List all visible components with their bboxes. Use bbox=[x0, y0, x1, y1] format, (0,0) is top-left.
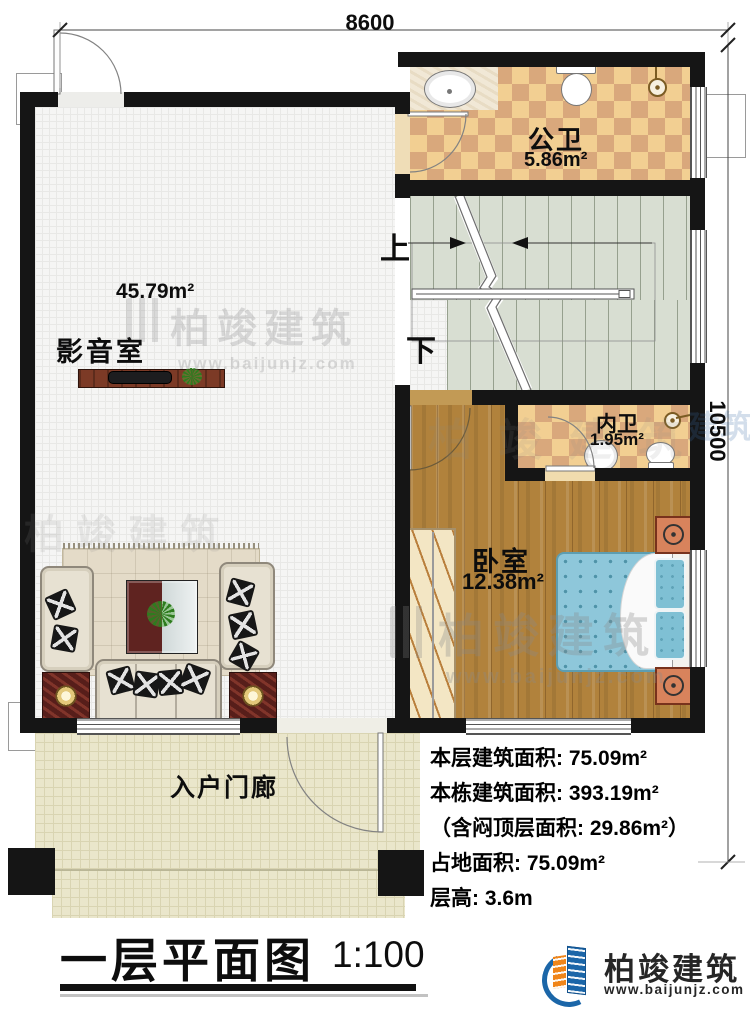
window-living-bottom bbox=[77, 718, 240, 735]
brand-website: www.baijunjz.com bbox=[604, 982, 745, 997]
entrance-door-swing-arc bbox=[287, 737, 382, 832]
plan-title: 一层平面图 bbox=[60, 922, 315, 991]
entrance-door-panel bbox=[378, 733, 383, 832]
wall-divider-b bbox=[395, 174, 410, 198]
watermark-private-bath: 柏竣建筑 bbox=[428, 404, 708, 468]
title-underline-thin bbox=[60, 994, 428, 997]
porch-name: 入户门廊 bbox=[170, 768, 278, 804]
window-bedroom-right bbox=[690, 550, 707, 667]
public-bath-door-panel bbox=[408, 112, 468, 116]
public-bath-door-swing-arc bbox=[410, 114, 466, 172]
watermark-text: 柏竣建筑 bbox=[438, 600, 667, 666]
side-door-swing-arc bbox=[60, 33, 121, 94]
stat-building-area: 本栋建筑面积: 393.19m² bbox=[430, 777, 659, 807]
porch-pillar-right bbox=[378, 850, 424, 896]
wall-divider-a bbox=[395, 92, 410, 114]
watermark-living-room: 柏竣建筑 bbox=[24, 502, 232, 560]
watermark-logo-icon bbox=[390, 606, 428, 658]
media-room-area: 45.79m² bbox=[116, 280, 194, 304]
stat-attic-area: （含闷顶层面积: 29.86m²） bbox=[430, 812, 689, 842]
watermark-url: www.baijunjz.com bbox=[446, 666, 667, 689]
wall-top-b bbox=[124, 92, 398, 107]
stat-storey-height: 层高: 3.6m bbox=[430, 882, 533, 912]
logo-orange-tower-icon bbox=[553, 955, 566, 989]
side-door-panel bbox=[54, 30, 60, 94]
wall-bath-stairs bbox=[398, 180, 690, 196]
title-underline-thick bbox=[60, 984, 416, 991]
stat-footprint-area: 占地面积: 75.09m² bbox=[430, 847, 605, 877]
logo-blue-tower-icon bbox=[567, 946, 586, 995]
wall-stairs-bedroom bbox=[472, 390, 690, 405]
wall-top-a bbox=[20, 92, 58, 107]
wall-private-bath-bottom-a bbox=[505, 468, 545, 481]
stair-handrail-cap bbox=[619, 291, 630, 298]
wall-private-bath-bottom-b bbox=[595, 468, 690, 481]
stair-arrow-icon bbox=[450, 237, 466, 249]
public-bath-area: 5.86m² bbox=[524, 149, 587, 172]
watermark-media-room: 柏竣建筑 www.baijunjz.com bbox=[128, 296, 358, 374]
wall-bath-top bbox=[398, 52, 705, 67]
watermark-bedroom: 柏竣建筑 www.baijunjz.com bbox=[392, 600, 667, 689]
plan-scale: 1:100 bbox=[332, 934, 425, 976]
stat-floor-area: 本层建筑面积: 75.09m² bbox=[430, 742, 647, 772]
watermark-url: www.baijunjz.com bbox=[178, 354, 358, 374]
media-room-name: 影音室 bbox=[56, 330, 146, 369]
porch-pillar-left bbox=[8, 848, 55, 895]
watermark-text: 柏竣建筑 bbox=[170, 296, 358, 354]
floor-plan-page: 柏竣建筑 www.baijunjz.com 柏竣建筑 柏竣建筑 柏竣建筑 www… bbox=[0, 0, 750, 1014]
window-stairs-right bbox=[690, 230, 707, 363]
dimension-right-value: 10500 bbox=[704, 376, 730, 486]
stairs-up-label: 上 bbox=[380, 224, 410, 268]
stairs-down-label: 下 bbox=[406, 326, 436, 370]
window-bedroom-bottom bbox=[466, 718, 631, 735]
window-bath-right bbox=[690, 87, 707, 178]
brand-logo-icon bbox=[542, 944, 600, 1002]
wall-left bbox=[20, 92, 35, 733]
stair-arrow-icon bbox=[512, 237, 528, 249]
bedroom-area: 12.38m² bbox=[462, 569, 544, 595]
dimension-top-value: 8600 bbox=[300, 10, 440, 36]
private-bath-area: 1.95m² bbox=[590, 430, 644, 450]
